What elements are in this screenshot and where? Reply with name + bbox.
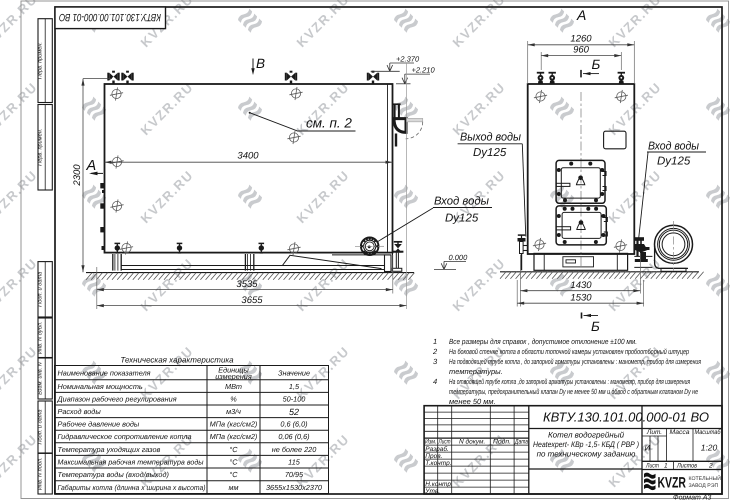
svg-text:1430: 1430 (570, 280, 592, 291)
svg-text:1260: 1260 (570, 34, 592, 45)
svg-text:Техническая характеристика: Техническая характеристика (120, 356, 234, 365)
svg-text:3400: 3400 (237, 151, 259, 162)
svg-text:Максимальная рабочая температу: Максимальная рабочая температура воды (58, 457, 205, 466)
svg-text:52: 52 (289, 407, 299, 417)
svg-text:Инв. N подл.: Инв. N подл. (37, 457, 44, 490)
svg-text:Гидравлическое сопротивление к: Гидравлическое сопротивление котла (58, 432, 192, 441)
svg-text:3535: 3535 (236, 279, 258, 290)
svg-text:Вход воды: Вход воды (434, 196, 490, 208)
svg-text:1:20: 1:20 (701, 443, 718, 453)
svg-text:И: И (645, 444, 651, 453)
svg-text:Диапазон рабочего регулировани: Диапазон рабочего регулирования (57, 394, 177, 403)
svg-text:МПа (кгс/см2): МПа (кгс/см2) (210, 432, 258, 441)
svg-text:Формат А3: Формат А3 (673, 495, 711, 500)
svg-text:по техническому заданию: по техническому заданию (537, 450, 636, 459)
svg-text:1530: 1530 (570, 293, 592, 304)
svg-text:ЗАВОД РЭП: ЗАВОД РЭП (689, 483, 719, 489)
svg-text:0,06 (0,6): 0,06 (0,6) (278, 432, 309, 441)
svg-text:Подп.: Подп. (493, 439, 511, 446)
svg-text:Разраб.: Разраб. (425, 446, 449, 453)
svg-text:70/95: 70/95 (285, 470, 304, 479)
svg-text:Б: Б (592, 57, 601, 72)
svg-text:На отводящей трубе котла ,до з: На отводящей трубе котла ,до запорной ар… (449, 377, 690, 386)
svg-text:На подводящей трубе котла ,: На подводящей трубе котла , до запорной … (449, 357, 701, 366)
svg-text:%: % (230, 394, 237, 403)
svg-text:Утв.: Утв. (424, 488, 440, 495)
svg-text:Наименование показателя: Наименование показателя (58, 369, 151, 378)
svg-text:Dy125: Dy125 (657, 156, 691, 168)
svg-text:2: 2 (708, 463, 713, 470)
svg-text:измерения: измерения (215, 372, 252, 381)
svg-text:не более 220: не более 220 (272, 445, 317, 454)
svg-text:°С: °С (229, 445, 238, 454)
svg-text:115: 115 (288, 457, 301, 466)
svg-text:+2.210: +2.210 (412, 66, 436, 75)
svg-text:мм: мм (228, 483, 238, 492)
svg-text:Т.контр.: Т.контр. (425, 460, 451, 467)
svg-text:Масса: Масса (670, 429, 690, 436)
svg-text:А: А (86, 158, 97, 174)
svg-text:В: В (256, 56, 265, 71)
svg-text:Значение: Значение (278, 369, 310, 378)
svg-text:Н.контр.: Н.контр. (425, 481, 453, 488)
svg-text:Перв. примен.: Перв. примен. (38, 129, 44, 166)
svg-text:Dy125: Dy125 (445, 213, 479, 225)
svg-text:N докум.: N докум. (459, 439, 485, 446)
svg-text:Расход воды: Расход воды (58, 407, 102, 416)
svg-text:м3/ч: м3/ч (226, 407, 241, 416)
svg-text:Пров.: Пров. (425, 453, 442, 460)
svg-text:°С: °С (229, 470, 238, 479)
svg-text:КВТУ.130.101.00.000-01 ВО: КВТУ.130.101.00.000-01 ВО (543, 410, 709, 425)
svg-text:Подп. и дата: Подп. и дата (37, 409, 44, 444)
svg-text:Dy125: Dy125 (473, 147, 507, 159)
svg-text:Температура уходящих газов: Температура уходящих газов (58, 445, 161, 454)
svg-text:1,5: 1,5 (289, 382, 300, 391)
svg-text:На боковой стенке котла в обла: На боковой стенке котла в области топочн… (449, 347, 689, 356)
svg-text:менее 50 мм.: менее 50 мм. (449, 397, 496, 406)
svg-text:Б: Б (591, 319, 600, 334)
svg-text:960: 960 (573, 44, 590, 55)
svg-text:KVZR: KVZR (658, 475, 687, 492)
svg-text:температуры, предохранительный: температуры, предохранительный клапан Dу… (449, 387, 698, 396)
svg-text:Вход воды: Вход воды (648, 141, 699, 153)
svg-text:3655: 3655 (241, 295, 263, 306)
svg-text:4: 4 (433, 377, 437, 386)
svg-text:Габариты котла (длинна х ширин: Габариты котла (длинна х ширина х высота… (58, 483, 206, 492)
svg-text:Подп. и дата: Подп. и дата (37, 272, 44, 307)
svg-text:МВт: МВт (225, 382, 242, 391)
svg-text:Листов: Листов (676, 463, 697, 470)
svg-text:2300: 2300 (72, 164, 83, 187)
svg-text:0,6 (6,0): 0,6 (6,0) (280, 420, 307, 429)
svg-text:Перв. примен.: Перв. примен. (38, 42, 44, 79)
svg-text:50-100: 50-100 (283, 394, 306, 403)
svg-text:3655х1530х2370: 3655х1530х2370 (266, 483, 322, 492)
svg-text:Масштаб: Масштаб (695, 429, 721, 436)
svg-text:+2.370: +2.370 (396, 54, 420, 63)
svg-text:см. п. 2: см. п. 2 (306, 116, 352, 131)
svg-text:Лит.: Лит. (646, 429, 662, 436)
svg-text:0.000: 0.000 (449, 253, 469, 262)
svg-text:°С: °С (229, 457, 238, 466)
svg-text:Лист: Лист (438, 439, 451, 446)
svg-text:Все размеры для справок , допу: Все размеры для справок , допустимое отк… (449, 337, 637, 346)
svg-text:Котел водогрейный: Котел водогрейный (548, 431, 625, 440)
svg-text:Выход воды: Выход воды (460, 132, 522, 144)
svg-text:КВТУ.130.101.00.000-01 ВО: КВТУ.130.101.00.000-01 ВО (59, 11, 161, 23)
svg-text:Дата: Дата (514, 439, 528, 446)
svg-text:Рабочее давление воды: Рабочее давление воды (58, 420, 140, 429)
svg-text:Инв. N дубл.: Инв. N дубл. (37, 322, 44, 354)
svg-text:МПа (кгс/см2): МПа (кгс/см2) (210, 420, 258, 429)
svg-text:температуры.: температуры. (449, 367, 503, 376)
svg-text:1: 1 (664, 463, 668, 470)
svg-text:2: 2 (432, 347, 438, 356)
svg-text:Температура воды (вход/выход): Температура воды (вход/выход) (58, 470, 169, 479)
svg-text:Heatexpert- КВр -1,5- КБД ( РВ: Heatexpert- КВр -1,5- КБД ( РВР ) (533, 440, 639, 449)
svg-text:Номинальная мощность: Номинальная мощность (58, 382, 143, 391)
svg-text:А: А (576, 7, 586, 23)
svg-text:Лист: Лист (645, 463, 659, 470)
svg-text:1: 1 (433, 337, 437, 346)
svg-text:КОТЕЛЬНЫЙ: КОТЕЛЬНЫЙ (689, 475, 722, 482)
svg-text:Изм.: Изм. (425, 439, 437, 446)
svg-text:Взам. инв. N: Взам. инв. N (38, 361, 44, 395)
